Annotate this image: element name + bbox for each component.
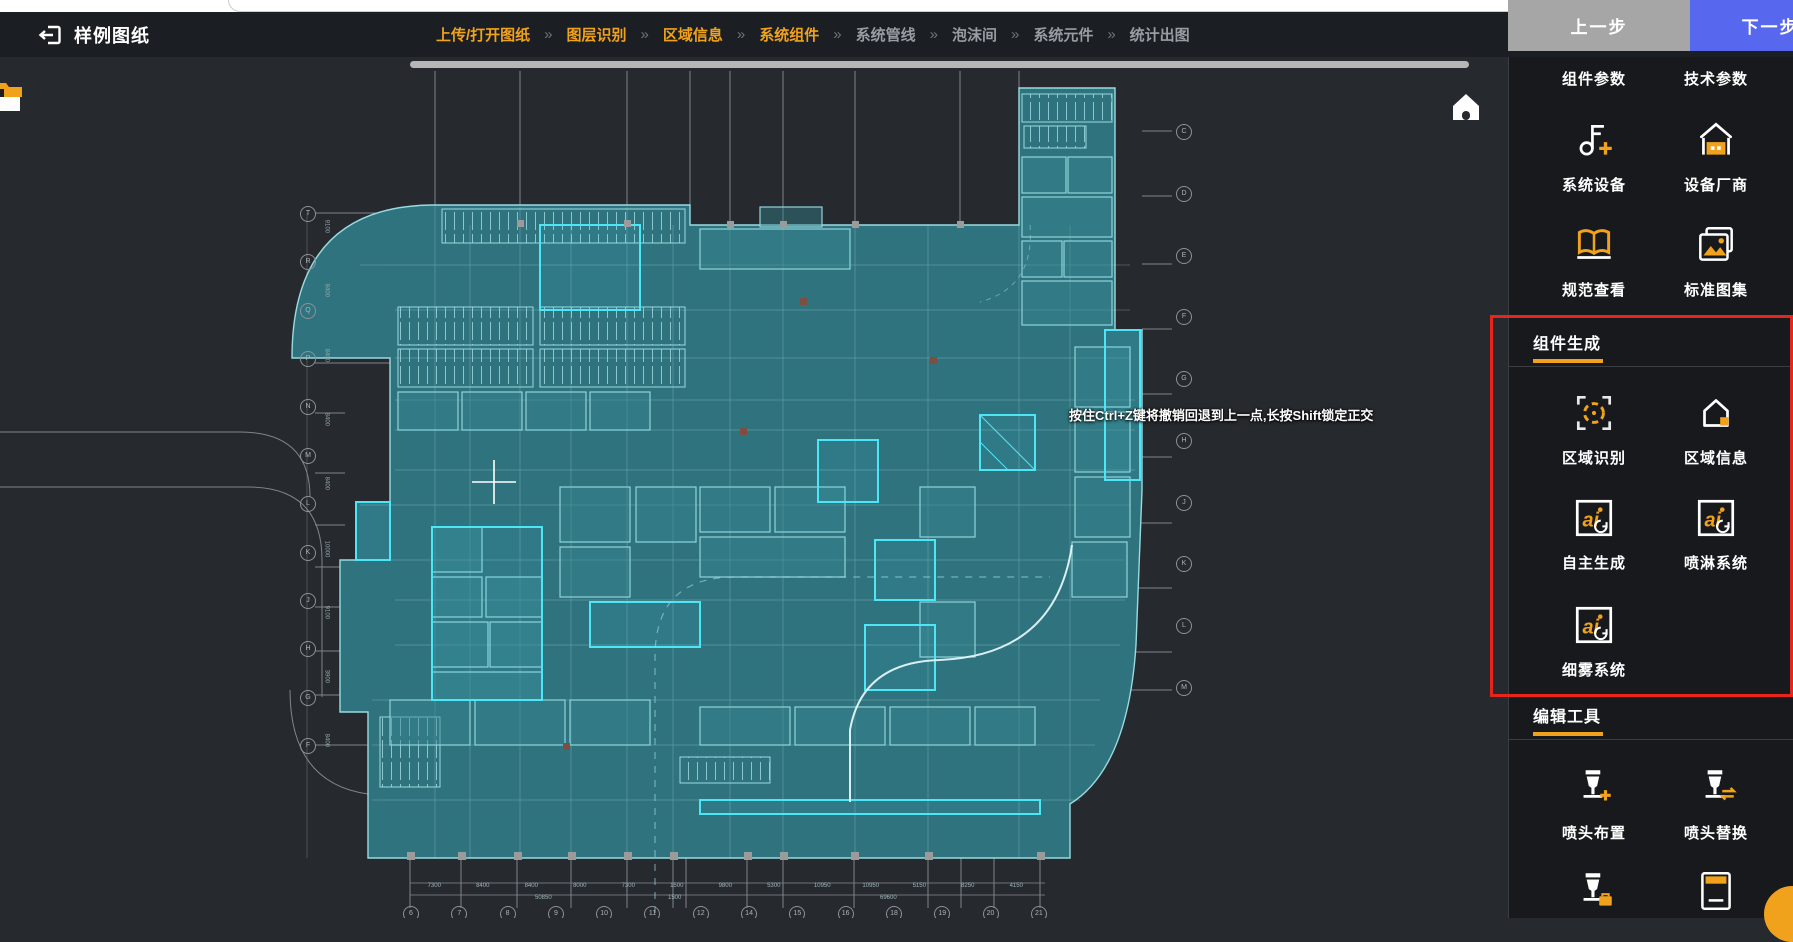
standard-atlas-button[interactable]: 标准图集 [1655,222,1777,300]
dimension-value: 9100 [323,220,329,237]
dimension-value: 7300 [410,883,459,889]
axis-bubble: 14 [741,906,757,918]
dimension-value: 8250 [944,883,993,889]
region-detect-icon [1571,390,1617,436]
mist-system-button[interactable]: ai 细雾系统 [1533,602,1655,680]
sidebar-row-mist: ai 细雾系统 [1533,602,1777,680]
breadcrumb-separator: » [641,26,649,43]
sidebar-row-heads: 喷头布置 喷头替换 [1533,765,1777,843]
dimension-value: 8400 [459,883,508,889]
home-view-button[interactable] [1449,91,1483,123]
sidebar-row-devices: 系统设备 设备厂商 [1533,117,1777,195]
step-system-pipeline[interactable]: 系统管线 [856,24,916,45]
device-vendor-button[interactable]: 设备厂商 [1655,117,1777,195]
axis-bubble: L [1176,618,1192,634]
dimension-value: 5150 [895,883,944,889]
axis-bubble: L [300,496,316,512]
axis-bubble: M [1176,680,1192,696]
axis-bubble: F [1176,309,1192,325]
dimension-value: 10950 [847,883,896,889]
axis-bubble: 20 [983,906,999,918]
spec-book-icon [1571,222,1617,268]
svg-text:ai: ai [1705,509,1722,531]
dimension-value: 8400 [323,734,329,751]
dimension-total: 50850 [535,895,552,901]
axis-bubble: K [1176,556,1192,572]
axis-bubble: T [300,206,316,222]
canvas-horizontal-scrollbar[interactable] [410,61,1469,68]
axis-bubble: 19 [934,906,950,918]
drawing-canvas[interactable]: 按住Ctrl+Z键将撤销回退到上一点,长按Shift锁定正交 678910111… [0,57,1508,918]
dimension-total: 69600 [880,895,897,901]
sidebar-top-labels: 组件参数 技术参数 [1533,68,1777,89]
axis-bubble: J [300,593,316,609]
spec-view-button[interactable]: 规范查看 [1533,222,1655,300]
step-layer-detect[interactable]: 图层识别 [567,24,627,45]
axis-bubble: K [300,545,316,561]
dimension-value: 9100 [323,605,329,622]
sidebar-row-bottom-partial [1533,868,1777,914]
bottom-axis-bubbles: 678910111214151618192021 [403,906,1047,918]
step-region-info[interactable]: 区域信息 [663,24,723,45]
dimension-value: 8400 [507,883,556,889]
axis-bubble: P [300,351,316,367]
dimension-value: 8400 [323,284,329,301]
step-system-element[interactable]: 系统元件 [1033,24,1093,45]
bottom-dimension-numbers: 7300840084008000730015009800530010950109… [410,883,1040,889]
dimension-value: 3900 [323,669,329,686]
step-stats-output[interactable]: 统计出图 [1130,24,1190,45]
folder-icon [0,75,26,115]
axis-bubble: G [300,690,316,706]
axis-bubble: M [300,448,316,464]
section-component-gen: 组件生成 [1533,330,1786,363]
axis-bubble: H [1176,433,1192,449]
axis-bubble: F [300,738,316,754]
dimension-value: 5300 [750,883,799,889]
region-info-button[interactable]: 区域信息 [1655,390,1777,468]
legend-panel-button[interactable] [1655,868,1777,914]
sprinkler-system-button[interactable]: ai 喷淋系统 [1655,495,1777,573]
breadcrumb-separator: » [737,26,745,43]
section-divider [1509,366,1793,367]
axis-bubble: 16 [838,906,854,918]
left-dimension-numbers: 9100840084008400840010000910039008400 [318,225,335,745]
axis-bubble: C [1176,124,1192,140]
axis-bubble: 10 [596,906,612,918]
standard-atlas-icon [1693,222,1739,268]
axis-bubble: 21 [1031,906,1047,918]
ai-mist-icon: ai [1571,602,1617,648]
axis-bubble: 18 [886,906,902,918]
head-replace-button[interactable]: 喷头替换 [1655,765,1777,843]
right-axis-bubbles: CDEFGHJKLM [1176,124,1192,696]
dimension-value: 4150 [992,883,1041,889]
axis-bubble: H [300,641,316,657]
axis-bubble: Q [300,303,316,319]
axis-bubble: 8 [500,906,516,918]
dimension-value: 8400 [323,412,329,429]
dimension-value: 10950 [798,883,847,889]
axis-bubble: G [1176,371,1192,387]
ai-generate-icon: ai [1571,495,1617,541]
axis-bubble: R [300,254,316,270]
page-title: 样例图纸 [74,22,150,48]
region-info-icon [1693,390,1739,436]
section-underline [1533,732,1603,736]
ai-sprinkler-icon: ai [1693,495,1739,541]
undo-hint-tooltip: 按住Ctrl+Z键将撤销回退到上一点,长按Shift锁定正交 [1069,405,1373,424]
step-system-component[interactable]: 系统组件 [759,24,819,45]
sprinkler-lock-icon [1571,868,1617,914]
sprinkler-replace-icon [1693,765,1739,811]
breadcrumb-separator: » [1107,26,1115,43]
tool-technical-params-label[interactable]: 技术参数 [1655,68,1777,89]
breadcrumb: 上传/打开图纸 » 图层识别 » 区域信息 » 系统组件 » 系统管线 » 泡沫… [436,12,1190,57]
dimension-value: 8400 [323,477,329,494]
axis-bubble: 12 [693,906,709,918]
prev-step-button[interactable]: 上一步 [1508,0,1690,51]
step-upload-open[interactable]: 上传/打开图纸 [436,24,530,45]
region-detect-button[interactable]: 区域识别 [1533,390,1655,468]
section-title: 编辑工具 [1533,703,1786,727]
section-title: 组件生成 [1533,330,1786,354]
sidebar-row-region: 区域识别 区域信息 [1533,390,1777,468]
system-device-button[interactable]: 系统设备 [1533,117,1655,195]
sprinkler-add-icon [1571,765,1617,811]
tools-sidebar: 组件参数 技术参数 系统设备 设备厂商 [1508,57,1793,918]
left-axis-bubbles: TRQPNMLKJHGF [300,206,316,754]
device-vendor-icon [1693,117,1739,163]
floor-plan-drawing [0,57,1508,918]
dimension-total: 1500 [668,895,681,901]
dimension-value: 8400 [323,348,329,365]
breadcrumb-separator: » [930,26,938,43]
head-lock-button[interactable] [1533,868,1655,914]
dimension-value: 8000 [556,883,605,889]
exit-icon[interactable] [38,23,62,47]
section-underline [1533,359,1603,363]
axis-bubble: 11 [644,906,660,918]
section-divider [1509,739,1793,740]
head-layout-button[interactable]: 喷头布置 [1533,765,1655,843]
svg-text:ai: ai [1583,616,1600,638]
system-device-icon [1571,117,1617,163]
sidebar-row-reference: 规范查看 标准图集 [1533,222,1777,300]
axis-bubble: N [300,399,316,415]
crosshair-cursor [472,460,516,504]
axis-bubble: J [1176,495,1192,511]
home-icon [1449,91,1483,123]
dimension-value: 7300 [604,883,653,889]
breadcrumb-separator: » [544,26,552,43]
dimension-value: 10000 [323,541,329,558]
dimension-value: 1500 [653,883,702,889]
axis-bubble: E [1176,248,1192,264]
axis-bubble: 7 [451,906,467,918]
step-foam-room[interactable]: 泡沫间 [952,24,997,45]
svg-text:ai: ai [1583,509,1600,531]
breadcrumb-separator: » [1011,26,1019,43]
breadcrumb-separator: » [833,26,841,43]
next-step-button[interactable]: 下一步 [1690,0,1793,51]
omnibox-bottom-edge [228,0,1732,12]
dimension-value: 9800 [701,883,750,889]
tool-component-params-label[interactable]: 组件参数 [1533,68,1655,89]
axis-bubble: 15 [789,906,805,918]
section-edit-tools: 编辑工具 [1533,703,1786,736]
axis-bubble: 9 [548,906,564,918]
open-drawing-button[interactable] [0,75,26,115]
axis-bubble: 6 [403,906,419,918]
auto-generate-button[interactable]: ai 自主生成 [1533,495,1655,573]
axis-bubble: D [1176,186,1192,202]
sidebar-row-generate: ai 自主生成 ai 喷淋系统 [1533,495,1777,573]
legend-panel-icon [1693,868,1739,914]
